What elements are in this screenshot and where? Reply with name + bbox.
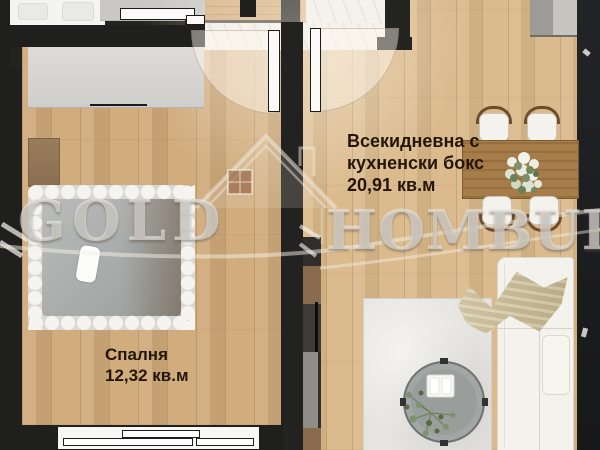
bedroom-window	[57, 426, 260, 450]
bathroom-sliding-door-offset	[186, 15, 205, 25]
hall-threshold-line	[200, 20, 281, 23]
bedroom-door-leaf	[268, 30, 280, 112]
coffee-table	[399, 357, 489, 447]
dining-chair-2	[522, 106, 562, 142]
chair-seat	[482, 196, 512, 225]
window-pane	[196, 438, 254, 446]
dining-chair-3	[477, 196, 517, 232]
wall-top-horizontal	[10, 25, 205, 47]
bedroom-name: Спалня	[105, 344, 189, 365]
bed-duvet	[42, 199, 181, 316]
bathroom-sliding-door	[120, 8, 195, 20]
bedroom-label: Спалня 12,32 кв.м	[105, 344, 189, 386]
tv-console-cabinet	[303, 352, 318, 430]
chair-seat	[527, 113, 557, 142]
dining-chair-4	[524, 196, 564, 232]
kitchen-counter-left	[530, 0, 553, 37]
floor-plan: GOLD HOMBURG Всекидневна с кухненски бок…	[0, 0, 600, 450]
double-bed	[28, 185, 195, 330]
wall-entry-stub	[240, 0, 256, 17]
wall-middle	[281, 22, 303, 450]
wall-left-top	[0, 0, 10, 75]
tv-console-middle	[303, 304, 321, 352]
wall-bottom-center	[257, 425, 283, 450]
kitchen-counter-edge	[530, 35, 577, 37]
kitchen-counter-right	[553, 0, 577, 37]
tv-console-shelf-bottom	[303, 428, 321, 450]
living-room-name-line1: Всекидневна с	[347, 130, 484, 152]
living-room-label: Всекидневна с кухненски бокс 20,91 кв.м	[347, 130, 484, 196]
wall-bottom-left	[22, 425, 58, 450]
flower-centerpiece	[500, 148, 546, 196]
living-room-area: 20,91 кв.м	[347, 174, 484, 196]
bathroom-sink	[18, 3, 48, 20]
tv-console-shelf-top	[303, 266, 321, 304]
living-room-name-line2: кухненски бокс	[347, 152, 484, 174]
bathroom-fixture	[62, 2, 94, 21]
bedroom-area: 12,32 кв.м	[105, 365, 189, 386]
sofa-seam	[539, 329, 540, 450]
window-pane	[63, 438, 193, 446]
wardrobe-door-line	[90, 104, 147, 106]
tv-screen	[315, 302, 318, 354]
window-pane	[122, 430, 200, 438]
sofa-cushion	[542, 335, 570, 395]
living-door-leaf	[310, 28, 321, 112]
chair-seat	[529, 196, 559, 225]
dresser	[28, 138, 60, 187]
wall-left	[0, 68, 22, 450]
wall-right	[577, 0, 600, 450]
wardrobe	[28, 47, 204, 108]
entry-floor-upper	[306, 0, 385, 23]
